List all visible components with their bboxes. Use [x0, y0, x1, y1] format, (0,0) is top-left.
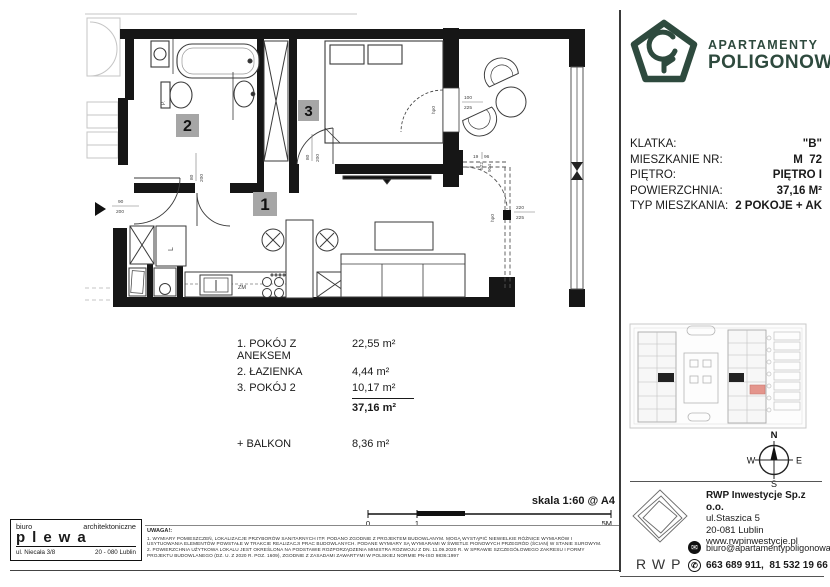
- architect-city: 20 - 080 Lublin: [95, 549, 136, 556]
- info-row-typ: TYP MIESZKANIA: 2 POKOJE + AK: [630, 200, 822, 212]
- svg-text:90: 90: [118, 199, 124, 205]
- rwp-logo-text: RWP: [636, 556, 686, 572]
- dimensions: 90 200 80 200 80 200 100 225 hp0 220 225…: [112, 95, 535, 222]
- washer-label: P.: [161, 101, 167, 105]
- svg-text:200: 200: [315, 154, 321, 162]
- architect-stamp: biuro architektoniczne plewa ul. Niecała…: [10, 519, 142, 561]
- balcony-row: + BALKON 8,36 m²: [237, 438, 422, 450]
- stairwell-mark: [658, 373, 674, 382]
- svg-text:19: 19: [473, 154, 479, 160]
- developer-address1: ul.Staszica 5: [706, 513, 826, 525]
- developer-phones: 663 689 911, 81 532 19 66: [706, 560, 828, 571]
- cabinet-label: L: [168, 247, 175, 251]
- compass-e: E: [796, 456, 802, 466]
- unit-info: KLATKA: "B" MIESZKANIE NR: M 72 PIĘTRO: …: [630, 138, 822, 216]
- balcony-area: 8,36 m²: [352, 438, 414, 450]
- rwp-logo-icon: [628, 486, 692, 552]
- svg-text:80: 80: [305, 154, 311, 160]
- svg-text:220: 220: [516, 205, 524, 211]
- total-area: 37,16 m²: [352, 398, 414, 414]
- bath-door-arc: [197, 193, 230, 226]
- info-row-mieszkanie: MIESZKANIE NR: M 72: [630, 154, 822, 166]
- balcony-label: + BALKON: [237, 438, 352, 450]
- unit-highlight: [750, 385, 765, 394]
- stairwell-mark: [729, 373, 744, 382]
- svg-text:522: 522: [479, 162, 485, 170]
- info-label: POWIERZCHNIA:: [630, 185, 723, 197]
- info-label: PIĘTRO:: [630, 169, 676, 181]
- developer-email[interactable]: biuro@apartamentypoligonowa.pl: [706, 543, 830, 553]
- balcony-window: [571, 67, 583, 289]
- notes-block: UWAGA!: 1. WYMIARY POMIESZCZEŃ, LOKALIZA…: [147, 528, 615, 559]
- north-needle: [771, 445, 778, 460]
- floor-plan-drawing: P.: [85, 10, 618, 322]
- svg-text:100: 100: [464, 95, 472, 101]
- email-icon: ✉: [688, 541, 701, 554]
- site-plan: [628, 318, 810, 434]
- room-schedule: 1. POKÓJ Z ANEKSEM 22,55 m² 2. ŁAZIENKA …: [237, 338, 422, 454]
- brand-logo-icon: [628, 18, 700, 94]
- schedule-row: 1. POKÓJ Z ANEKSEM 22,55 m²: [237, 338, 422, 362]
- compass-n: N: [771, 430, 778, 441]
- bathroom: [151, 39, 259, 226]
- vertical-divider: [619, 10, 621, 572]
- svg-text:hp0: hp0: [431, 106, 437, 114]
- scale-tick-1: 1: [415, 519, 419, 528]
- coffee-table-icon: [375, 222, 433, 250]
- door-handle: [503, 210, 511, 220]
- room-label: 2. ŁAZIENKA: [237, 366, 352, 378]
- balcony-chair-icon: [462, 107, 502, 142]
- info-label: TYP MIESZKANIA:: [630, 200, 728, 212]
- info-label: KLATKA:: [630, 138, 676, 150]
- svg-text:200: 200: [199, 174, 205, 182]
- svg-text:225: 225: [516, 215, 524, 221]
- developer-address2: 20-081 Lublin: [706, 525, 826, 537]
- info-value: M 72: [793, 154, 822, 166]
- info-label: MIESZKANIE NR:: [630, 154, 723, 166]
- info-value: PIĘTRO I: [773, 169, 822, 181]
- info-value: 2 POKOJE + AK: [735, 200, 822, 212]
- phone-icon: ✆: [688, 559, 701, 572]
- notes-title: UWAGA!:: [147, 528, 615, 534]
- svg-text:96: 96: [484, 154, 490, 160]
- dining-table-icon: [286, 220, 313, 298]
- chair-icon: [316, 229, 338, 251]
- notes-line: PROJEKTU BUDOWLANEGO (DZ. U. Z 2020 R. P…: [147, 553, 615, 559]
- footer-divider: [145, 525, 619, 526]
- info-row-pietro: PIĘTRO: PIĘTRO I: [630, 169, 822, 181]
- architect-name: plewa: [16, 530, 136, 545]
- info-row-powierzchnia: POWIERZCHNIA: 37,16 M²: [630, 185, 822, 197]
- tall-cabinet-icon: [156, 226, 186, 266]
- svg-text:80: 80: [189, 174, 195, 180]
- svg-text:904: 904: [487, 164, 493, 172]
- room-label: 1. POKÓJ Z ANEKSEM: [237, 338, 352, 362]
- chair-icon: [262, 229, 284, 251]
- svg-text:225: 225: [464, 105, 472, 111]
- phone-row: ✆ 663 689 911, 81 532 19 66: [688, 559, 828, 572]
- svg-text:200: 200: [116, 209, 124, 215]
- architect-street: ul. Niecała 3/8: [16, 549, 55, 556]
- wardrobe-icon: [264, 41, 288, 161]
- email-row: ✉ biuro@apartamentypoligonowa.pl: [688, 541, 830, 554]
- balcony-table-icon: [496, 87, 526, 117]
- schedule-total-row: 37,16 m²: [237, 398, 422, 414]
- svg-text:hp0: hp0: [490, 214, 496, 222]
- hall-wardrobe-icon: [130, 226, 154, 264]
- scale-label: skala 1:60 @ A4: [360, 495, 615, 507]
- room3-label: 3: [304, 103, 312, 120]
- schedule-row: 3. POKÓJ 2 10,17 m²: [237, 382, 422, 394]
- scale-tick-0: 0: [366, 519, 370, 528]
- scale-tick-5m: 5M: [602, 519, 612, 528]
- info-row-klatka: KLATKA: "B": [630, 138, 822, 150]
- brand-header: APARTAMENTY POLIGONOWA: [628, 18, 830, 94]
- bottom-divider-right: [620, 576, 824, 577]
- sofa-icon: [341, 254, 465, 297]
- schedule-row: 2. ŁAZIENKA 4,44 m²: [237, 366, 422, 378]
- entrance-arrow-icon: [95, 202, 106, 216]
- floor-plan-sheet: P.: [0, 0, 830, 587]
- compass-w: W: [747, 456, 756, 466]
- developer-company: RWP Inwestycje Sp.z o.o.: [706, 490, 826, 513]
- sink-label: ZM: [238, 285, 246, 291]
- bedroom: [297, 41, 459, 164]
- room1-label: 1: [260, 195, 269, 214]
- info-value: 37,16 M²: [777, 185, 822, 197]
- room2-label: 2: [183, 118, 192, 135]
- info-value: "B": [803, 138, 822, 150]
- brand-line2: POLIGONOWA: [708, 53, 830, 73]
- room-label: 3. POKÓJ 2: [237, 382, 352, 394]
- balcony-chair-icon: [479, 52, 519, 87]
- developer-info: RWP Inwestycje Sp.z o.o. ul.Staszica 5 2…: [706, 490, 826, 548]
- room-area: 10,17 m²: [352, 382, 414, 394]
- bottom-divider-left: [10, 570, 619, 571]
- glass-wall: [463, 162, 510, 289]
- right-divider: [630, 481, 822, 482]
- room-area: 4,44 m²: [352, 366, 414, 378]
- room-area: 22,55 m²: [352, 338, 414, 362]
- brand-line1: APARTAMENTY: [708, 39, 830, 52]
- compass-rose: N S W E: [740, 428, 810, 488]
